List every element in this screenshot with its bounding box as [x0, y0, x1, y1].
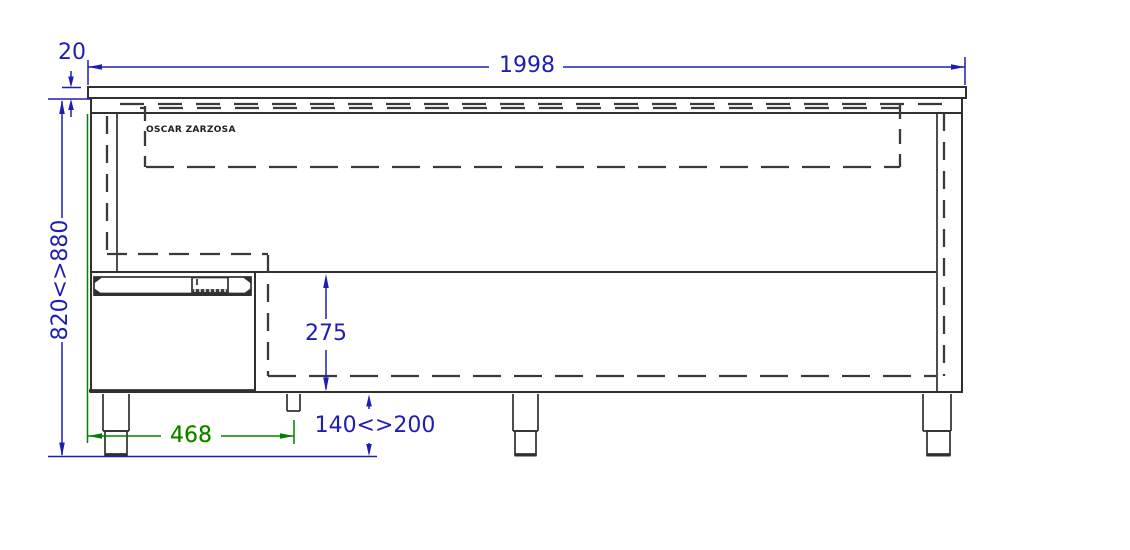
- brand-logo: OSCAR ZARZOSA: [146, 126, 236, 135]
- dim-drawer-height-label: 275: [305, 323, 347, 345]
- dim-leg-height-label: 140<>200: [315, 415, 436, 437]
- drawer-unit: [89, 272, 256, 392]
- dim-top-thickness: [48, 71, 90, 117]
- leg-left: [103, 394, 129, 455]
- dim-height-label: 820<>880: [50, 220, 72, 341]
- leg-middle: [513, 394, 538, 455]
- cabinet-body: [90, 98, 963, 392]
- technical-drawing: 20 1998 820<>880 275 140<>200 468 OSCAR …: [0, 0, 1130, 550]
- hidden-edges: [107, 104, 944, 376]
- drawer-handle: [192, 278, 228, 293]
- leg-right: [923, 394, 951, 455]
- dim-top-thickness-label: 20: [58, 42, 86, 64]
- drawing-linework: [0, 0, 1130, 550]
- countertop: [88, 87, 966, 98]
- dim-drawer-width-label: 468: [170, 425, 212, 447]
- dim-total-width-label: 1998: [499, 55, 555, 77]
- dim-drawer-width: [88, 114, 295, 444]
- leg-stub: [287, 394, 300, 411]
